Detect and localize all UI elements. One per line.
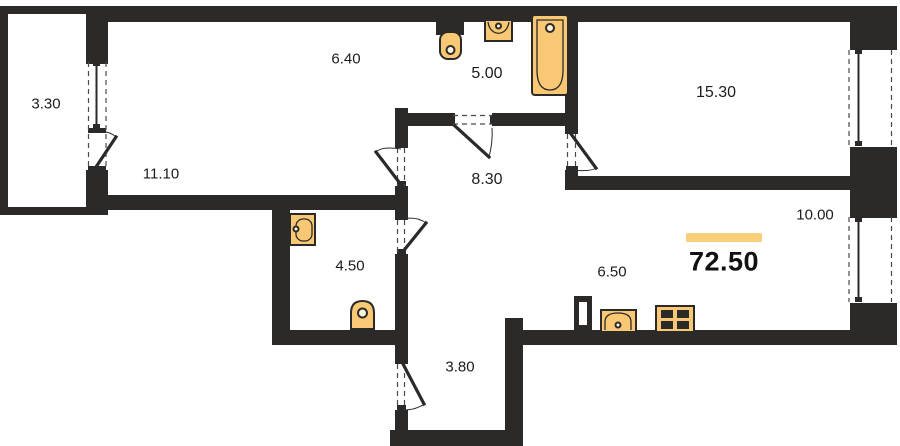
room-area-bedroom-right: 15.30 xyxy=(696,84,736,102)
washbasin-icon xyxy=(485,14,512,41)
stove-icon xyxy=(656,306,694,332)
total-area-accent-bar xyxy=(686,233,762,242)
window-dashes xyxy=(89,50,892,410)
toilet-icon xyxy=(351,301,374,342)
room-area-wardrobe: 6.40 xyxy=(331,51,360,68)
room-area-bathroom-top: 5.00 xyxy=(471,65,502,83)
room-area-living-zone: 10.00 xyxy=(796,207,834,224)
total-area-value: 72.50 xyxy=(689,247,759,278)
room-area-balcony: 3.30 xyxy=(31,96,60,113)
washbasin-icon xyxy=(290,214,315,245)
floorplan-drawing xyxy=(0,0,900,446)
bathtub-icon xyxy=(532,15,568,95)
door-kitchen xyxy=(571,134,596,171)
room-area-hallway: 8.30 xyxy=(471,171,502,189)
room-area-bedroom-left: 11.10 xyxy=(143,166,179,183)
door-balcony xyxy=(94,132,116,170)
kitchen-sink-icon xyxy=(601,310,636,332)
door-entrance xyxy=(402,362,424,410)
door-bathroom-top xyxy=(455,126,492,157)
room-area-wc: 4.50 xyxy=(335,258,364,275)
room-area-entry-hall: 3.80 xyxy=(445,359,474,376)
toilet-icon xyxy=(437,22,463,59)
floor-plan-canvas: 3.30 11.10 6.40 5.00 15.30 8.30 10.00 4.… xyxy=(0,0,900,446)
room-area-kitchen-zone: 6.50 xyxy=(597,264,626,281)
ventilation-duct-icon xyxy=(574,296,592,330)
walls xyxy=(0,6,897,446)
